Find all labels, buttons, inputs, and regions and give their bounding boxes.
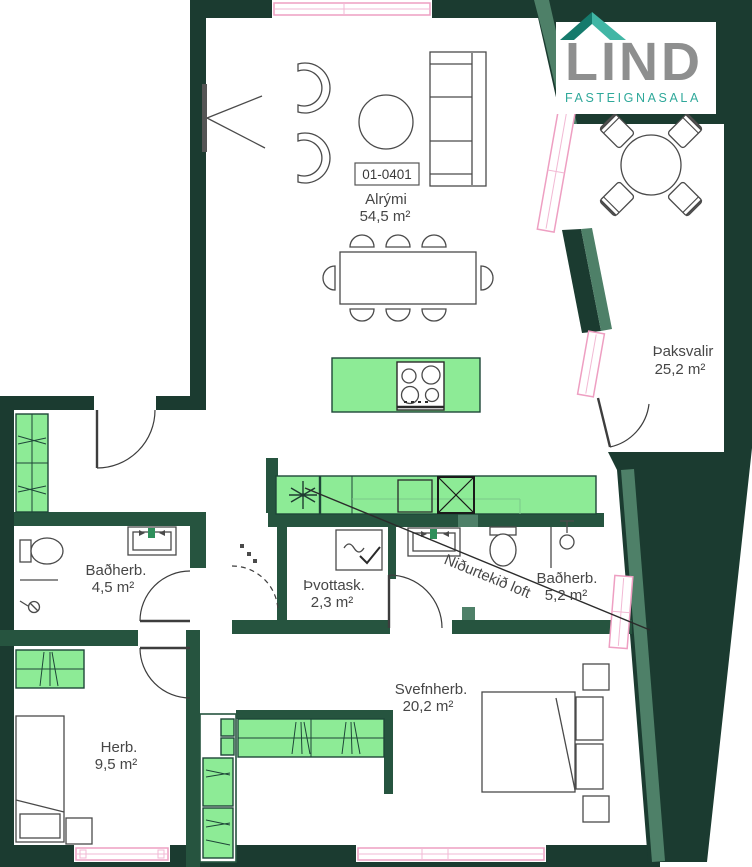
room-label-badherb1: Baðherb. (86, 562, 147, 579)
stove-icon (397, 362, 444, 410)
top-window (274, 3, 430, 15)
room-area-thaksvalir: 25,2 m² (655, 361, 706, 378)
toilet-icon (31, 538, 63, 564)
coffee-table (359, 95, 413, 149)
herb-shelf (16, 650, 84, 688)
pillow (576, 697, 603, 740)
kitchen-island (332, 358, 480, 412)
room-area-badherb2: 5,2 m² (545, 587, 588, 604)
kitchen-counter (276, 476, 596, 514)
room-area-herb: 9,5 m² (95, 756, 138, 773)
nightstand (583, 796, 609, 822)
walkin-closet-strip (200, 714, 236, 862)
pillow (576, 744, 603, 789)
bottom-window-svefnherb (358, 848, 544, 860)
logo: LIND FASTEIGNASALA (556, 12, 716, 114)
nightstand (583, 664, 609, 690)
washer-icon (336, 530, 382, 570)
toilet-icon (490, 534, 516, 566)
sofa (430, 52, 486, 186)
room-area-svefnherb: 20,2 m² (403, 698, 454, 715)
bottom-window-herb (76, 848, 168, 860)
room-label-thvottask: Þvottask. (303, 577, 365, 594)
floorplan-canvas: Niðurtekið loft 01-0401 Alrými 54,5 m² Þ… (0, 0, 752, 867)
room-label-alrymi: Alrými (365, 191, 407, 208)
unit-number: 01-0401 (362, 167, 412, 182)
room-area-badherb1: 4,5 m² (92, 579, 135, 596)
sink-icon (408, 528, 460, 556)
sink-icon (128, 527, 176, 555)
room-area-alrymi: 54,5 m² (360, 208, 411, 225)
bedroom-wardrobe (238, 719, 384, 757)
room-label-thaksvalir: Þaksvalir (653, 343, 714, 360)
toilet-tank (20, 540, 31, 562)
room-label-herb: Herb. (101, 739, 138, 756)
balcony-table (621, 135, 681, 195)
logo-subtitle: FASTEIGNASALA (565, 91, 701, 105)
hallway-wardrobe (16, 414, 48, 512)
floorplan-svg: Niðurtekið loft 01-0401 Alrými 54,5 m² Þ… (0, 0, 752, 867)
room-label-svefnherb: Svefnherb. (395, 681, 468, 698)
nightstand (66, 818, 92, 844)
logo-text: LIND (565, 32, 703, 92)
room-area-thvottask: 2,3 m² (311, 594, 354, 611)
room-label-badherb2: Baðherb. (537, 570, 598, 587)
dining-table (340, 252, 476, 304)
